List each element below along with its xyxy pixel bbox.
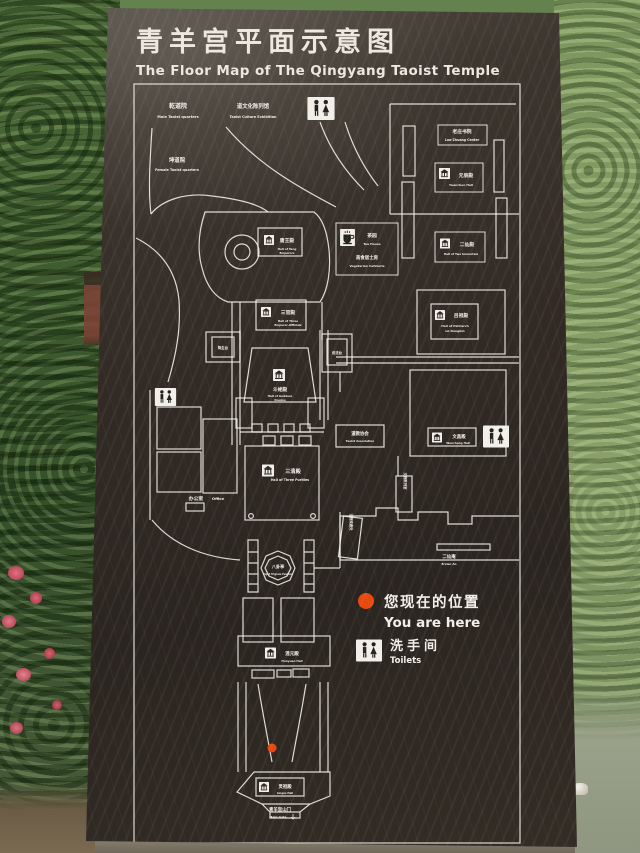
flower-blossom — [16, 668, 31, 681]
legend: 您现在的位置 You are here 洗手间 Toilets — [356, 593, 480, 666]
toilet-icon — [356, 640, 382, 662]
hall-icon — [265, 648, 276, 659]
svg-text:文昌殿: 文昌殿 — [452, 433, 466, 440]
building-dharma-shop: 法物流通处 — [349, 514, 354, 532]
svg-text:吕祖殿: 吕祖殿 — [454, 312, 469, 319]
svg-text:坤道院: 坤道院 — [169, 156, 186, 164]
building-office: 办公室 Office — [189, 495, 225, 502]
svg-text:斋食居士房: 斋食居士房 — [355, 254, 379, 261]
hall-icon — [432, 433, 442, 443]
building-yuanchen-hall: 元辰殿 Yuanchen Hall — [435, 163, 483, 192]
toilet-icon — [483, 426, 509, 448]
building-tea-house: 茶园 Tea House 斋食居士房 Vegetarian Cafeteria — [336, 223, 398, 275]
svg-text:混元殿: 混元殿 — [285, 650, 299, 657]
you-are-here-dot — [268, 744, 277, 753]
map-linework — [134, 84, 520, 843]
svg-text:灵祖殿: 灵祖殿 — [278, 783, 292, 790]
svg-text:Office: Office — [212, 496, 225, 501]
building-hall-of-two-immortals: 二仙殿 Hall of Two Immortals — [435, 232, 485, 262]
hall-icon — [439, 168, 450, 179]
flower-blossom — [2, 615, 16, 628]
building-eight-trigram-pavilion: 八卦亭 Eight Trigram Pavilion — [263, 563, 293, 576]
building-hunyuan-hall: 混元殿 Hunyuan Hall — [265, 648, 303, 664]
svg-text:三官殿: 三官殿 — [281, 309, 296, 316]
svg-text:Erxian An: Erxian An — [441, 562, 456, 566]
svg-text:唐王殿: 唐王殿 — [280, 237, 295, 244]
building-lingzu-hall: 灵祖殿 Lingzu Hall — [259, 782, 293, 795]
toilet-icon — [307, 97, 334, 120]
svg-text:Emperors: Emperors — [279, 251, 294, 255]
flower-blossom — [8, 566, 24, 580]
svg-text:Taoist Association: Taoist Association — [346, 439, 374, 443]
flower-blossom — [52, 700, 62, 710]
building-male-taoist-quarters: 乾道院 Male Taoist quarters — [157, 102, 199, 119]
legend-toilets-en: Toilets — [390, 656, 421, 666]
hall-icon — [440, 239, 450, 249]
building-hall-of-goddess-doumu: 斗姥殿 Hall of Goddess Doumu — [268, 369, 293, 402]
svg-text:茶园: 茶园 — [366, 232, 377, 239]
svg-text:Wenchang Hall: Wenchang Hall — [446, 441, 470, 445]
legend-you-are-here-en: You are here — [383, 615, 480, 631]
building-taoist-culture-exhibition: 道文化陈列馆 Taoist Culture Exhibition — [230, 102, 278, 119]
svg-text:二仙殿: 二仙殿 — [460, 241, 475, 248]
building-erxian-an: 二仙庵 Erxian An — [441, 553, 456, 566]
building-jiangsheng-terrace: 降生台 — [218, 345, 229, 350]
hall-icon — [273, 369, 285, 381]
building-hall-of-tang-emperors: 唐王殿 Hall of Tang Emperors — [264, 235, 296, 255]
svg-text:Taoist Culture Exhibition: Taoist Culture Exhibition — [230, 115, 278, 119]
svg-text:乾道院: 乾道院 — [169, 102, 187, 110]
svg-text:Main Gate: Main Gate — [269, 815, 286, 819]
photo-of-map-sign: 青羊宫平面示意图 The Floor Map of The Qingyang T… — [0, 0, 640, 853]
svg-text:Lao-Zhuang Center: Lao-Zhuang Center — [445, 138, 480, 142]
building-relics-room: 文物陈列室 — [403, 472, 408, 491]
svg-text:Vegetarian Cafeteria: Vegetarian Cafeteria — [349, 264, 384, 268]
svg-text:办公室: 办公室 — [189, 495, 204, 502]
hall-icon — [262, 465, 274, 477]
toilet-icon — [155, 388, 176, 406]
svg-text:Hall of Two Immortals: Hall of Two Immortals — [444, 252, 479, 256]
building-hall-of-three-purities: 三清殿 Hall of Three Purities — [262, 465, 309, 483]
svg-text:二仙庵: 二仙庵 — [442, 553, 456, 560]
svg-text:老庄书院: 老庄书院 — [451, 128, 471, 135]
legend-toilets-zh: 洗手间 — [390, 638, 441, 654]
svg-text:青羊宫山门: 青羊宫山门 — [269, 806, 292, 813]
svg-text:Tea House: Tea House — [363, 242, 380, 246]
building-shuofa-terrace: 说法台 — [332, 350, 343, 355]
building-hall-of-three-officials: 三官殿 Hall of Three Emperor-Officials — [261, 307, 302, 327]
flower-blossom — [30, 592, 42, 604]
svg-text:Yuanchen Hall: Yuanchen Hall — [448, 183, 473, 187]
legend-location-dot — [358, 593, 374, 609]
tea-cup-icon — [340, 229, 355, 246]
hall-icon — [259, 782, 269, 792]
building-female-taoist-quarters: 坤道院 Female Taoist quarters — [155, 156, 199, 172]
hall-icon — [435, 310, 445, 320]
flower-blossom — [10, 722, 23, 734]
legend-you-are-here-zh: 您现在的位置 — [384, 593, 480, 611]
svg-text:三清殿: 三清殿 — [285, 467, 301, 475]
hall-icon — [264, 235, 274, 245]
svg-text:八卦亭: 八卦亭 — [271, 563, 285, 570]
svg-text:Doumu: Doumu — [274, 398, 285, 402]
svg-text:Lü Dongbin: Lü Dongbin — [445, 329, 464, 333]
building-laozhuang-center: 老庄书院 Lao-Zhuang Center — [438, 125, 487, 145]
svg-text:Eight Trigram Pavilion: Eight Trigram Pavilion — [263, 573, 293, 576]
svg-text:道文化陈列馆: 道文化陈列馆 — [237, 102, 270, 110]
svg-text:Hall of Three Purities: Hall of Three Purities — [271, 478, 309, 482]
svg-text:Female Taoist quarters: Female Taoist quarters — [155, 168, 199, 172]
svg-text:Male Taoist quarters: Male Taoist quarters — [157, 115, 199, 119]
flower-blossom — [44, 648, 55, 659]
building-hall-of-patriarch-lv: 吕祖殿 Hall of Patriarch Lü Dongbin — [435, 310, 469, 333]
svg-text:元辰殿: 元辰殿 — [459, 172, 474, 179]
building-wenchang-hall: 文昌殿 Wenchang Hall — [432, 433, 470, 446]
building-taoist-association: 道教协会 Taoist Association — [346, 430, 374, 443]
svg-text:Lingzu Hall: Lingzu Hall — [277, 791, 293, 795]
hall-icon — [261, 307, 271, 317]
svg-text:Emperor-Officials: Emperor-Officials — [274, 323, 302, 327]
svg-text:Hall of Patriarch: Hall of Patriarch — [441, 324, 469, 328]
svg-text:斗姥殿: 斗姥殿 — [273, 386, 288, 393]
svg-text:Hunyuan Hall: Hunyuan Hall — [281, 659, 302, 663]
svg-text:道教协会: 道教协会 — [351, 430, 369, 437]
